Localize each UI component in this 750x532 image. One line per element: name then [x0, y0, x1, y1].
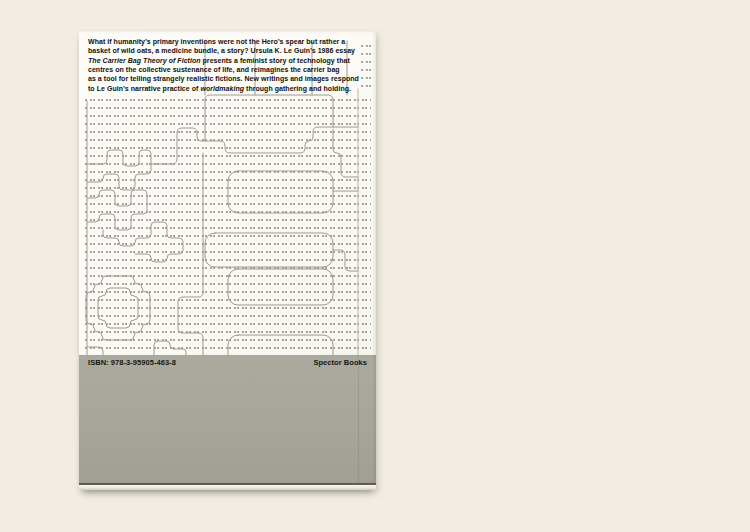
- maze-rect-bag-rect-3: [228, 269, 333, 305]
- maze-stroke-maze-1: [87, 150, 151, 190]
- blurb-text: What if humanity’s primary inventions we…: [88, 37, 370, 93]
- maze-stroke-medallion-inner: [98, 288, 138, 328]
- spine-crease-band: [358, 355, 359, 483]
- cover-upper-panel: What if humanity’s primary inventions we…: [79, 31, 376, 355]
- maze-stroke-medallion-outer: [86, 276, 150, 340]
- maze-stroke-connector-right-2: [333, 250, 358, 271]
- blurb-line: as a tool for telling strangely realisti…: [88, 74, 370, 83]
- maze-stroke-stair-to-crease: [333, 129, 358, 177]
- blurb-line: to Le Guin’s narrative practice of world…: [88, 84, 370, 93]
- maze-stroke-vessel-shelf: [151, 127, 358, 164]
- maze-rect-bag-rect-1: [228, 171, 333, 213]
- maze-stroke-bottom-piece-2: [87, 347, 103, 355]
- blurb-line: centres on the collective sustenance of …: [88, 65, 370, 74]
- book-back-cover: What if humanity’s primary inventions we…: [79, 31, 376, 490]
- blurb-line: The Carrier Bag Theory of Fiction presen…: [88, 56, 370, 65]
- maze-rect-bag-rect-4: [228, 335, 333, 355]
- maze-stroke-maze-2: [87, 190, 147, 230]
- page-edges: [79, 485, 376, 490]
- photo-backdrop: What if humanity’s primary inventions we…: [0, 0, 750, 532]
- isbn-band: ISBN: 978‑3‑95905‑463‑8 Spector Books: [79, 355, 376, 485]
- maze-rect-bag-rect-2: [205, 233, 333, 267]
- blurb-line: What if humanity’s primary inventions we…: [88, 37, 370, 46]
- blurb-line: basket of wild oats, a medicine bundle, …: [88, 46, 370, 55]
- maze-stroke-notched-vertical: [178, 153, 203, 355]
- maze-stroke-vessel-top: [205, 95, 333, 141]
- maze-stroke-bottom-piece-1: [154, 341, 186, 355]
- isbn-label: ISBN: 978‑3‑95905‑463‑8: [88, 358, 176, 368]
